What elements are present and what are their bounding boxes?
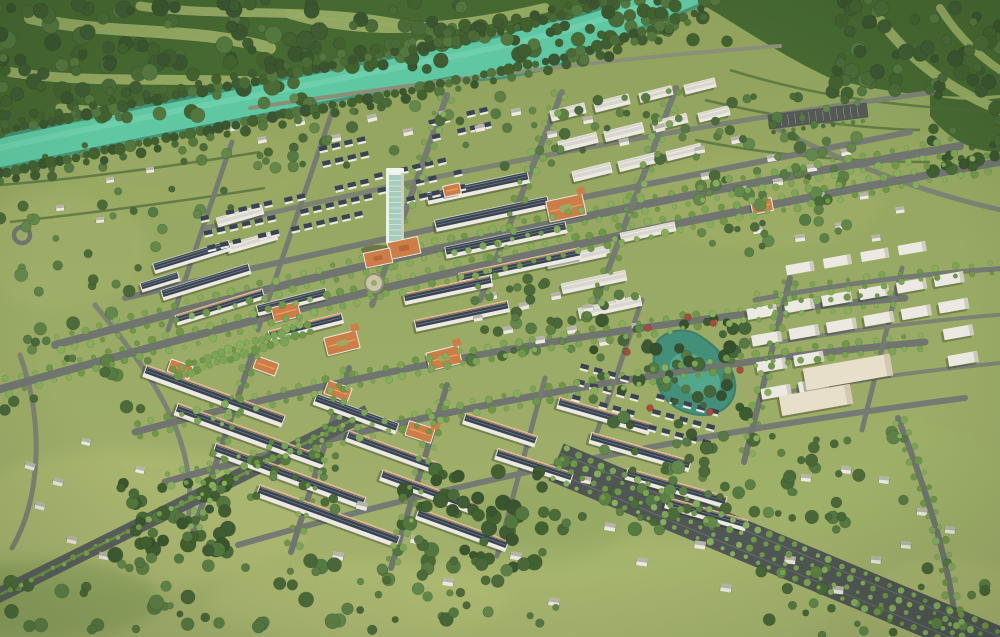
tree	[816, 174, 824, 182]
tree	[279, 301, 287, 309]
tree	[363, 269, 369, 275]
tree	[391, 89, 399, 97]
tree	[236, 341, 245, 350]
tree	[463, 77, 471, 85]
tree	[634, 369, 641, 376]
tree	[224, 131, 231, 138]
tree	[875, 576, 880, 581]
tree	[524, 284, 535, 295]
tree	[542, 241, 547, 246]
tree	[66, 375, 72, 381]
tree	[628, 522, 642, 536]
tree	[475, 558, 488, 571]
tree	[849, 0, 863, 13]
tree	[967, 591, 975, 599]
tree	[545, 383, 553, 391]
tree	[910, 14, 920, 24]
tree	[227, 356, 234, 363]
tree	[449, 608, 459, 618]
tree	[398, 425, 406, 433]
tree	[639, 501, 643, 505]
tree	[913, 181, 920, 188]
tree	[398, 18, 412, 32]
tree	[479, 242, 486, 249]
tree	[239, 77, 250, 88]
tree	[0, 404, 10, 415]
tree	[21, 222, 32, 233]
tree	[135, 353, 143, 361]
tree	[922, 562, 934, 574]
tree	[532, 347, 538, 353]
tree	[299, 161, 305, 167]
tree	[675, 115, 682, 122]
tree	[810, 281, 815, 286]
tree	[470, 347, 477, 354]
tree	[202, 560, 214, 572]
tree	[407, 485, 412, 490]
tree	[452, 470, 464, 482]
tree	[887, 614, 893, 620]
tree	[709, 310, 716, 317]
tree	[311, 379, 316, 384]
tree	[431, 475, 442, 486]
tree	[651, 504, 658, 511]
tree	[490, 77, 497, 84]
tree	[619, 321, 626, 328]
tree	[164, 20, 172, 28]
tree	[972, 62, 982, 72]
tree	[136, 148, 146, 158]
tree	[706, 506, 713, 513]
tree	[433, 493, 448, 508]
tree	[658, 488, 664, 494]
tree	[649, 167, 654, 172]
tree	[753, 363, 758, 368]
tree	[417, 90, 427, 100]
tree	[75, 82, 89, 96]
tree	[463, 602, 471, 610]
tree	[598, 299, 605, 306]
tree	[538, 507, 549, 518]
tree	[898, 495, 908, 505]
tree	[280, 387, 286, 393]
tree	[857, 86, 867, 96]
tree	[320, 432, 325, 437]
tree	[898, 272, 902, 276]
tree	[818, 576, 823, 581]
tree	[718, 204, 725, 211]
tree	[292, 66, 303, 77]
tree	[521, 197, 528, 204]
tree	[812, 343, 818, 349]
tree	[240, 349, 249, 358]
tree	[378, 59, 389, 70]
tree	[179, 467, 186, 474]
tree	[78, 50, 87, 59]
tree	[654, 151, 660, 157]
tree	[370, 422, 375, 427]
tree	[157, 224, 167, 234]
tree	[491, 109, 501, 119]
tree	[489, 226, 497, 234]
tree	[844, 306, 852, 314]
tree	[272, 277, 280, 285]
tree	[410, 273, 415, 278]
tree	[599, 229, 607, 237]
tree	[780, 134, 789, 143]
tree	[159, 85, 168, 94]
tree	[472, 272, 479, 279]
tree	[715, 196, 720, 201]
tree	[142, 90, 150, 98]
tree	[831, 582, 836, 587]
tree	[112, 280, 121, 289]
tree	[562, 518, 571, 527]
tree	[637, 514, 644, 521]
tree	[802, 546, 808, 552]
tree	[458, 274, 464, 280]
tree	[711, 117, 719, 125]
tree	[6, 3, 16, 13]
tree	[606, 336, 614, 344]
tree	[243, 383, 249, 389]
tree	[310, 308, 318, 316]
tree	[364, 53, 372, 61]
tree	[232, 121, 241, 130]
tree	[589, 345, 598, 354]
tree	[778, 292, 784, 298]
tree	[559, 338, 565, 344]
tree	[244, 340, 250, 346]
tree	[134, 341, 139, 346]
flowering-tree	[624, 349, 631, 356]
tree	[799, 556, 803, 560]
tree	[491, 575, 504, 588]
tree	[700, 197, 706, 203]
tree	[221, 400, 229, 408]
tree	[831, 497, 842, 508]
tree	[457, 348, 463, 354]
tree	[411, 411, 418, 418]
tree	[141, 64, 157, 80]
tree	[681, 373, 687, 379]
tree	[806, 570, 812, 576]
tree	[621, 472, 627, 478]
tree	[485, 290, 489, 294]
tree	[149, 595, 164, 610]
tree	[684, 496, 689, 501]
tree	[739, 530, 744, 535]
tree	[54, 334, 59, 339]
tree	[93, 543, 97, 547]
tree	[18, 373, 24, 379]
tree	[166, 347, 173, 354]
tree	[444, 279, 449, 284]
tree	[510, 237, 515, 242]
tree	[523, 60, 533, 70]
tree	[429, 125, 434, 130]
tree	[121, 112, 133, 124]
tree	[709, 368, 717, 376]
tree	[574, 106, 583, 115]
tree	[274, 577, 286, 589]
tree	[248, 69, 257, 78]
tree	[630, 37, 638, 45]
tree	[207, 461, 212, 466]
tree	[504, 245, 509, 250]
tree	[700, 13, 707, 20]
tree	[253, 161, 262, 170]
tree	[634, 236, 640, 242]
tree	[930, 55, 938, 63]
tree	[416, 155, 421, 160]
tree	[535, 522, 548, 535]
tree	[29, 577, 34, 582]
tree	[627, 213, 632, 218]
tree	[937, 154, 942, 159]
tree	[600, 495, 606, 501]
tree	[927, 484, 932, 489]
tree	[211, 474, 216, 479]
tree	[597, 31, 605, 39]
tree	[194, 417, 201, 424]
tree	[836, 571, 842, 577]
tree	[707, 221, 714, 228]
tree	[62, 360, 67, 365]
tree	[275, 290, 283, 298]
tree	[177, 84, 185, 92]
tree	[193, 210, 202, 219]
tree	[119, 153, 127, 161]
tree	[667, 502, 673, 508]
tree	[802, 610, 808, 616]
tree	[507, 73, 515, 81]
tree	[636, 321, 641, 326]
tree	[844, 294, 851, 301]
tree	[238, 364, 245, 371]
tree	[190, 108, 205, 123]
tree	[846, 278, 850, 282]
tree	[218, 504, 231, 517]
tree	[627, 193, 633, 199]
tree	[288, 161, 299, 172]
tree	[923, 598, 928, 603]
tree	[82, 327, 90, 335]
tree	[169, 186, 176, 193]
tree	[938, 73, 948, 83]
tree	[783, 470, 796, 483]
tree	[604, 242, 611, 249]
tree	[535, 136, 541, 142]
tree	[202, 545, 214, 557]
tree	[688, 519, 693, 524]
tree	[270, 332, 277, 339]
tree	[395, 559, 402, 566]
tree	[328, 101, 336, 109]
tree	[100, 337, 105, 342]
tree	[183, 532, 193, 542]
tree	[838, 197, 844, 203]
tree	[883, 186, 890, 193]
tree	[534, 216, 541, 223]
tree	[221, 121, 230, 130]
tree	[952, 577, 958, 583]
tree	[345, 386, 350, 391]
tree	[898, 44, 914, 60]
tree	[967, 74, 979, 86]
tree	[238, 397, 244, 403]
tree	[240, 462, 248, 470]
tree	[332, 452, 339, 459]
tree	[47, 171, 57, 181]
tree	[771, 169, 778, 176]
tree	[565, 1, 572, 8]
tree	[501, 564, 513, 576]
tree	[194, 466, 199, 471]
tree	[794, 141, 806, 153]
tree	[829, 75, 843, 89]
tree	[493, 327, 503, 337]
tree	[716, 128, 723, 135]
tree	[547, 317, 555, 325]
tree	[632, 212, 638, 218]
tree	[399, 514, 405, 520]
tree	[83, 550, 89, 556]
tree	[161, 95, 169, 103]
tree	[844, 155, 852, 163]
tree	[61, 92, 73, 104]
tree	[828, 297, 833, 302]
tree	[27, 214, 34, 221]
tree	[500, 225, 507, 232]
tree	[559, 128, 570, 139]
tree	[511, 195, 518, 202]
tree	[646, 481, 651, 486]
tree	[765, 209, 770, 214]
tree	[157, 483, 167, 493]
tree	[548, 5, 556, 13]
tree	[259, 343, 268, 352]
tree	[607, 253, 612, 258]
tree	[527, 612, 534, 619]
tree	[696, 373, 701, 378]
tree	[764, 357, 768, 361]
tree	[814, 205, 824, 215]
tree	[292, 474, 299, 481]
tree	[786, 167, 792, 173]
tree	[340, 303, 347, 310]
tree	[188, 523, 194, 529]
tree	[348, 371, 355, 378]
tree	[942, 592, 950, 600]
tree	[294, 116, 302, 124]
tree	[720, 482, 729, 491]
tree	[750, 451, 756, 457]
tree	[741, 175, 746, 180]
tree	[134, 264, 141, 271]
tree	[575, 391, 580, 396]
tree	[432, 111, 436, 115]
tree	[336, 288, 344, 296]
tree	[693, 154, 700, 161]
tree	[582, 220, 588, 226]
tree	[425, 267, 431, 273]
tree	[0, 82, 8, 93]
tree	[34, 618, 48, 632]
tree	[716, 493, 723, 500]
tree	[10, 87, 23, 100]
tree	[36, 381, 43, 388]
tree	[188, 495, 194, 501]
tree	[497, 28, 504, 35]
tree	[699, 466, 711, 478]
tree	[531, 258, 536, 263]
tree	[626, 421, 634, 429]
tree	[676, 89, 682, 95]
tree	[321, 498, 330, 507]
tree	[52, 378, 57, 383]
tree	[604, 125, 610, 131]
tree	[665, 25, 674, 34]
tree	[676, 517, 680, 521]
tree	[874, 151, 881, 158]
roundabout-island	[19, 232, 25, 238]
tree	[893, 420, 899, 426]
tree	[190, 507, 197, 514]
tree	[808, 442, 819, 453]
tree	[287, 77, 299, 89]
tree	[154, 145, 162, 153]
tree	[492, 272, 499, 279]
tree	[470, 398, 476, 404]
tree	[893, 64, 903, 74]
tree	[675, 215, 681, 221]
tree	[165, 472, 170, 477]
tree	[609, 34, 620, 45]
tree	[790, 93, 797, 100]
tree	[606, 476, 611, 481]
tree	[124, 140, 136, 152]
tree	[763, 614, 775, 626]
tree	[709, 170, 720, 181]
tree	[821, 185, 828, 192]
tree	[861, 605, 868, 612]
tree	[453, 260, 460, 267]
tree	[902, 346, 907, 351]
tree	[806, 149, 818, 161]
tree	[671, 399, 678, 406]
tree	[772, 557, 777, 562]
tree	[223, 55, 238, 70]
tree	[856, 590, 860, 594]
tree	[159, 322, 165, 328]
tree	[978, 631, 983, 636]
tree	[783, 301, 788, 306]
tree	[29, 109, 38, 118]
tree	[132, 625, 140, 633]
tree	[585, 24, 595, 34]
tree	[437, 252, 442, 257]
tree	[611, 499, 618, 506]
tree	[209, 403, 214, 408]
tree	[716, 390, 726, 400]
tree	[206, 466, 212, 472]
tree	[691, 224, 696, 229]
tree	[249, 311, 257, 319]
tree	[299, 331, 306, 338]
tree	[631, 448, 639, 456]
tree	[304, 513, 309, 518]
